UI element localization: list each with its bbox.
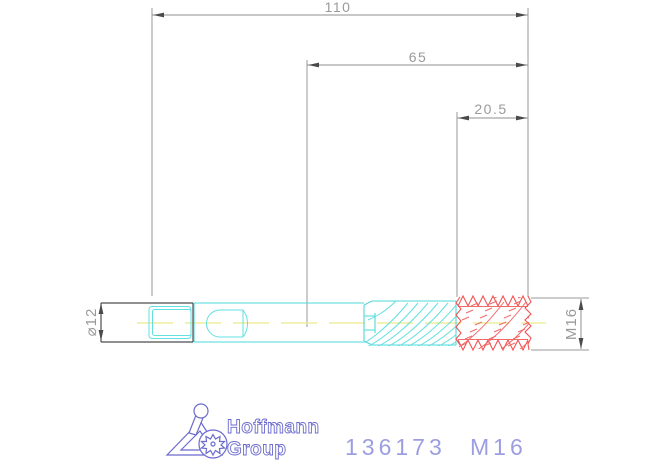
logo-person-head-icon — [194, 404, 208, 418]
dimension-overall-length: 110 — [152, 0, 528, 296]
hoffmann-group-logo: Hoffmann Group — [167, 404, 320, 460]
arrowhead-icon — [516, 63, 527, 68]
arrowhead-icon — [516, 116, 527, 121]
dimension-label-flute-length: 65 — [409, 49, 428, 65]
dimension-shank-diameter: ⌀12 — [83, 303, 103, 341]
thread-flank-hatches — [460, 295, 535, 346]
article-number: 136173 — [345, 434, 446, 460]
dimension-label-thread-designation: M16 — [563, 308, 580, 340]
dimension-label-shank-diameter: ⌀12 — [83, 308, 100, 337]
tap-technical-drawing: 110 65 20.5 M16 ⌀12 — [0, 0, 670, 460]
arrowhead-icon — [516, 13, 527, 18]
arrowhead-icon — [153, 13, 164, 18]
arrowhead-icon — [458, 116, 469, 121]
article-caption: 136173 M16 — [345, 434, 527, 460]
thread-crest-top — [458, 296, 528, 306]
brand-name-line1: Hoffmann — [227, 417, 320, 438]
dimension-thread-designation: M16 — [531, 298, 589, 350]
hoffmann-person-gear-logo-icon — [167, 404, 227, 458]
dimension-label-thread-length: 20.5 — [474, 101, 507, 117]
dimension-label-overall-length: 110 — [325, 0, 352, 15]
tap-tool-drawing — [101, 295, 556, 356]
thread-crest-bottom — [458, 340, 528, 350]
brand-name-line2: Group — [227, 439, 287, 460]
thread-helix-hatching — [450, 295, 556, 356]
technical-drawing-page: 110 65 20.5 M16 ⌀12 — [0, 0, 670, 460]
thread-section — [450, 295, 556, 356]
arrowhead-icon — [308, 63, 319, 68]
dimension-flute-length: 65 — [307, 49, 528, 327]
dimension-thread-length: 20.5 — [457, 101, 528, 297]
article-size: M16 — [470, 434, 527, 460]
